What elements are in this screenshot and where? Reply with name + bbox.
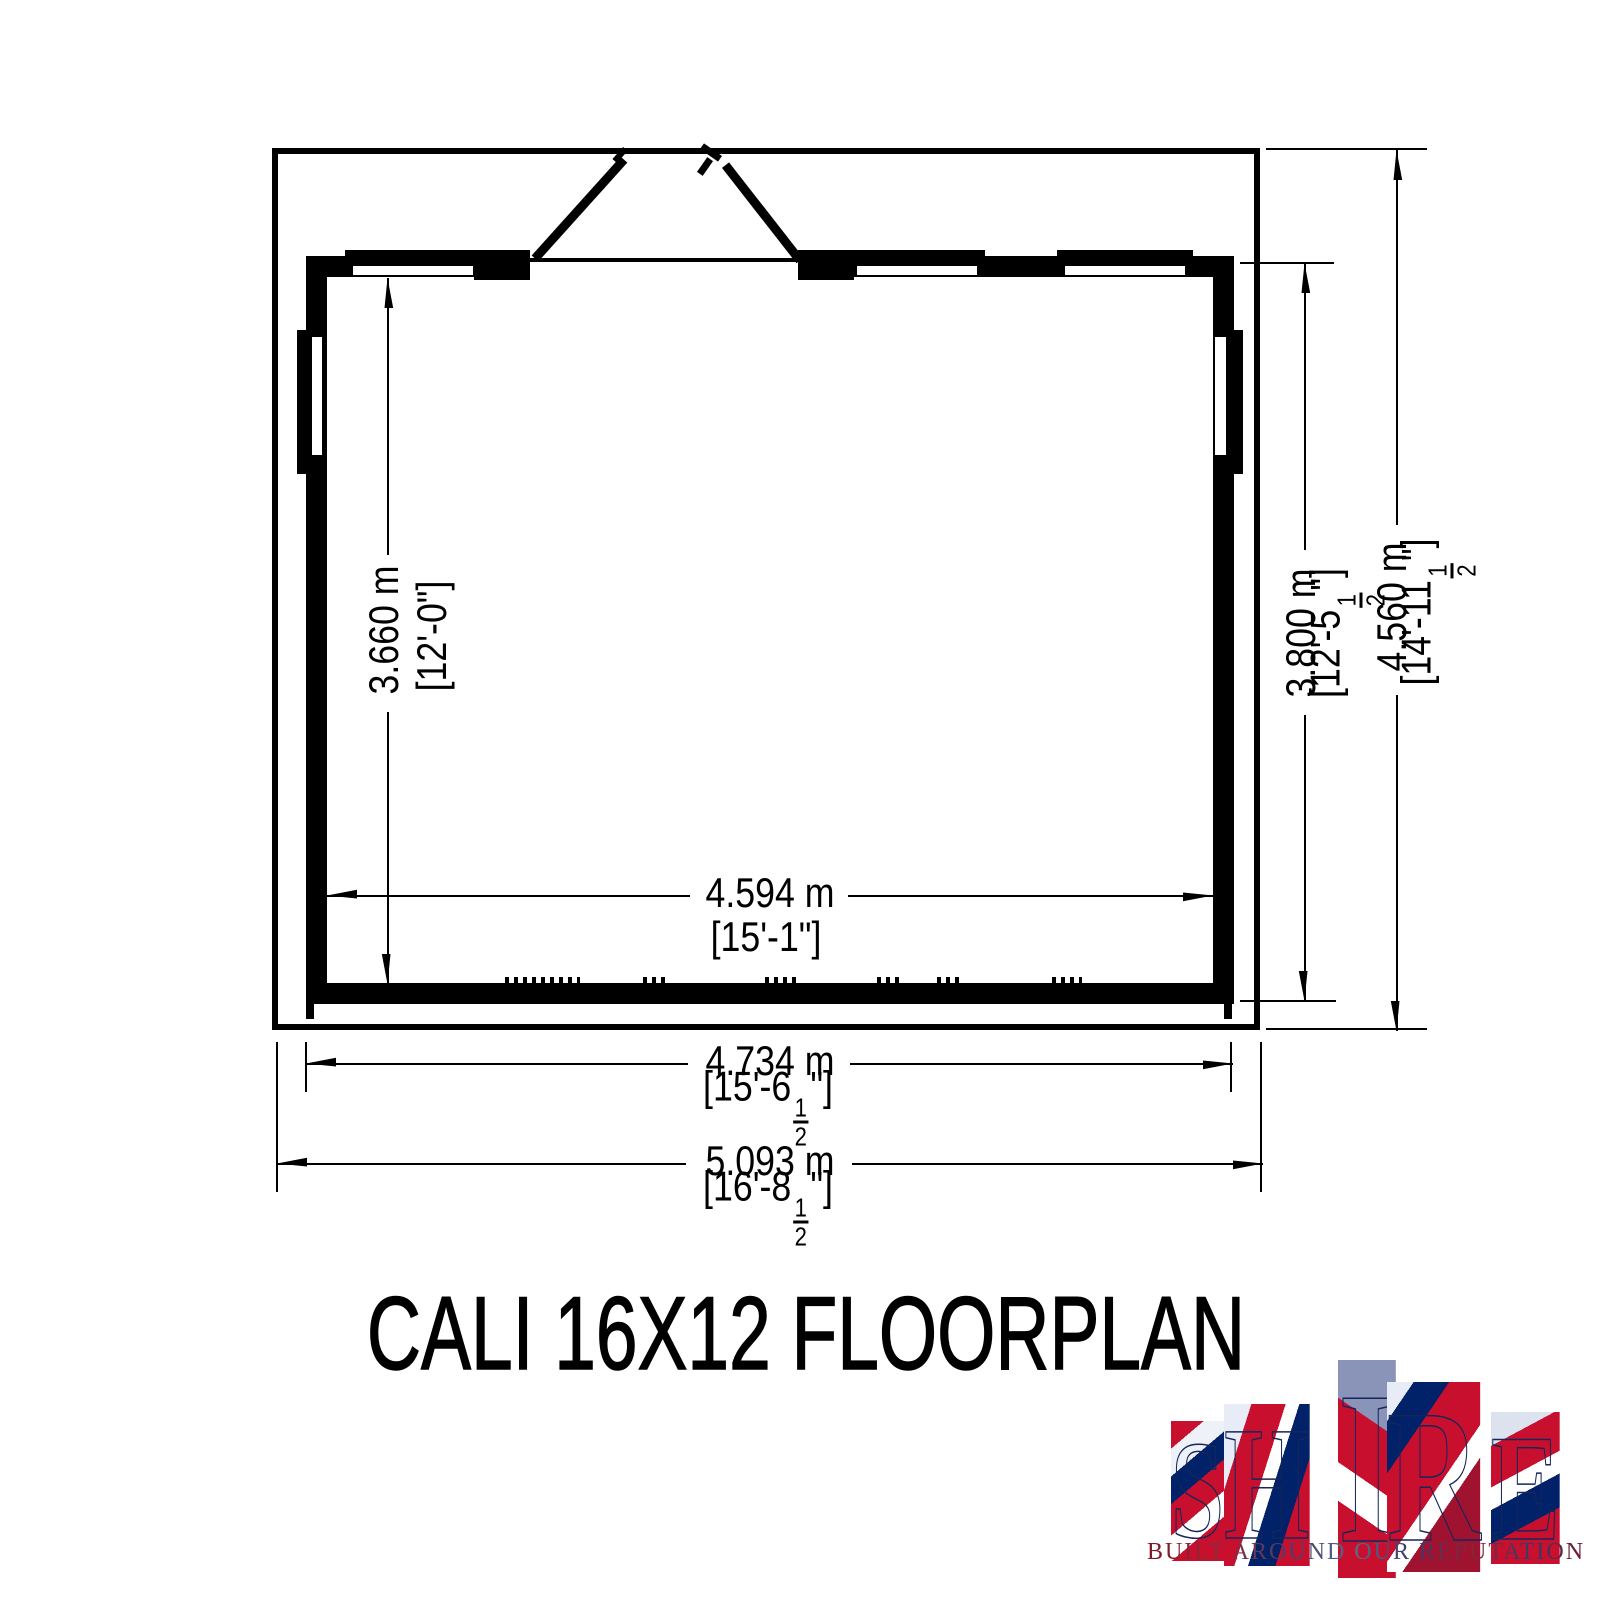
dim-line (306, 1063, 688, 1065)
floor-tick-marks (937, 977, 961, 984)
floor-tick-marks (505, 977, 580, 984)
right-window-frame (1234, 330, 1243, 474)
dim-line (850, 1063, 1233, 1065)
logo-tagline: BUILT AROUND OUR REPUTATION (1147, 1539, 1585, 1566)
arrow-down-icon (1389, 1001, 1404, 1031)
wall-foot-left (306, 1004, 314, 1019)
floor-tick-marks (877, 977, 903, 984)
floor-tick-marks (765, 977, 797, 984)
front-window-3-frame (1057, 250, 1193, 256)
floor-tick-marks (643, 977, 667, 984)
dim-line (852, 1163, 1263, 1165)
extension-line (1266, 148, 1427, 150)
extension-line (1240, 1000, 1336, 1002)
extension-line (1266, 1028, 1427, 1030)
floorplan-page: 3.660 m [12'-0"] 3.800 m [12'-512"] (0, 0, 1600, 1600)
dim-interior-width-metric: 4.594 m (694, 871, 846, 915)
dim-overall-depth-imperial: [14'-1112"] (1395, 525, 1480, 698)
front-window-1 (353, 266, 473, 275)
dim-line (848, 895, 1213, 897)
dim-line (1396, 150, 1398, 525)
dim-line (1396, 695, 1398, 1031)
dim-line (277, 1163, 686, 1165)
door-jamb-right (798, 250, 854, 280)
dim-line (327, 895, 690, 897)
arrow-up-icon (1389, 150, 1404, 180)
dim-line (1304, 715, 1306, 1001)
arrow-up-icon (1297, 263, 1312, 293)
front-window-1-frame (345, 250, 481, 256)
extension-line (1260, 1042, 1262, 1192)
extension-line (1240, 262, 1334, 264)
dim-line (387, 712, 389, 984)
wall-foot-right (1224, 1004, 1232, 1019)
arrow-down-icon (1297, 971, 1312, 1001)
left-window-frame (297, 330, 306, 474)
dim-line (387, 278, 389, 555)
shire-logo: S H I R E (1160, 1355, 1580, 1570)
dim-interior-width-imperial: [15'-1"] (701, 915, 831, 959)
dim-line (1304, 263, 1306, 550)
floorplan-drawing: 3.660 m [12'-0"] 3.800 m [12'-512"] (0, 0, 1600, 1250)
right-window (1215, 337, 1226, 455)
door-threshold (530, 258, 798, 262)
extension-line (276, 1042, 278, 1192)
front-window-2 (857, 266, 977, 275)
dim-interior-depth-imperial: [12'-0"] (410, 571, 454, 701)
arrow-left-icon (277, 1156, 307, 1171)
dim-interior-depth-metric: 3.660 m (362, 554, 406, 706)
left-window (312, 337, 322, 455)
floor-tick-marks (1052, 977, 1082, 984)
front-window-2-frame (849, 250, 985, 256)
door-jamb-left (474, 250, 530, 280)
extension-line (1230, 1042, 1232, 1092)
extension-line (305, 1042, 307, 1092)
arrow-right-icon (1233, 1156, 1263, 1171)
arrow-right-icon (1203, 1056, 1233, 1071)
dim-overall-width-imperial: [16'-812"] (692, 1165, 845, 1250)
front-window-3 (1065, 266, 1185, 275)
arrow-left-icon (306, 1056, 336, 1071)
